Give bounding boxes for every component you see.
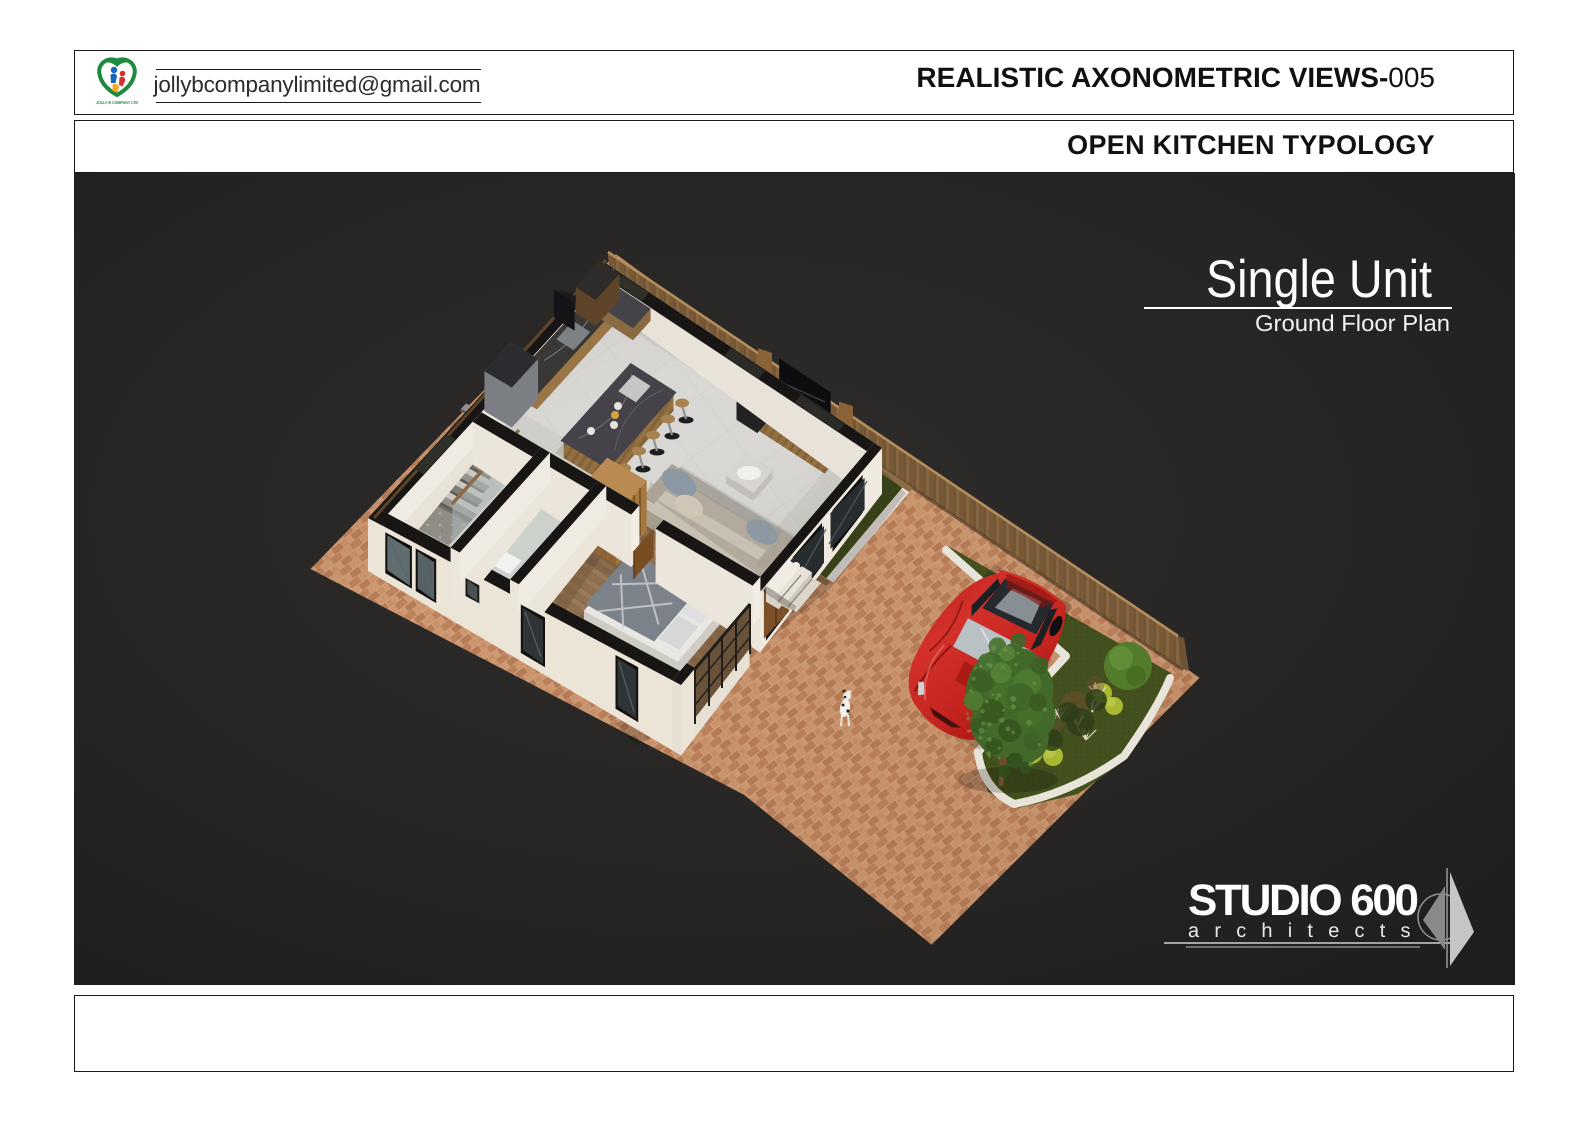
svg-text:Single Unit: Single Unit — [1206, 250, 1432, 309]
svg-text:STUDIO 600: STUDIO 600 — [1188, 876, 1420, 925]
svg-text:Ground Floor Plan: Ground Floor Plan — [1255, 310, 1450, 336]
svg-text:JOLLY B COMPANY LTD: JOLLY B COMPANY LTD — [96, 100, 138, 105]
